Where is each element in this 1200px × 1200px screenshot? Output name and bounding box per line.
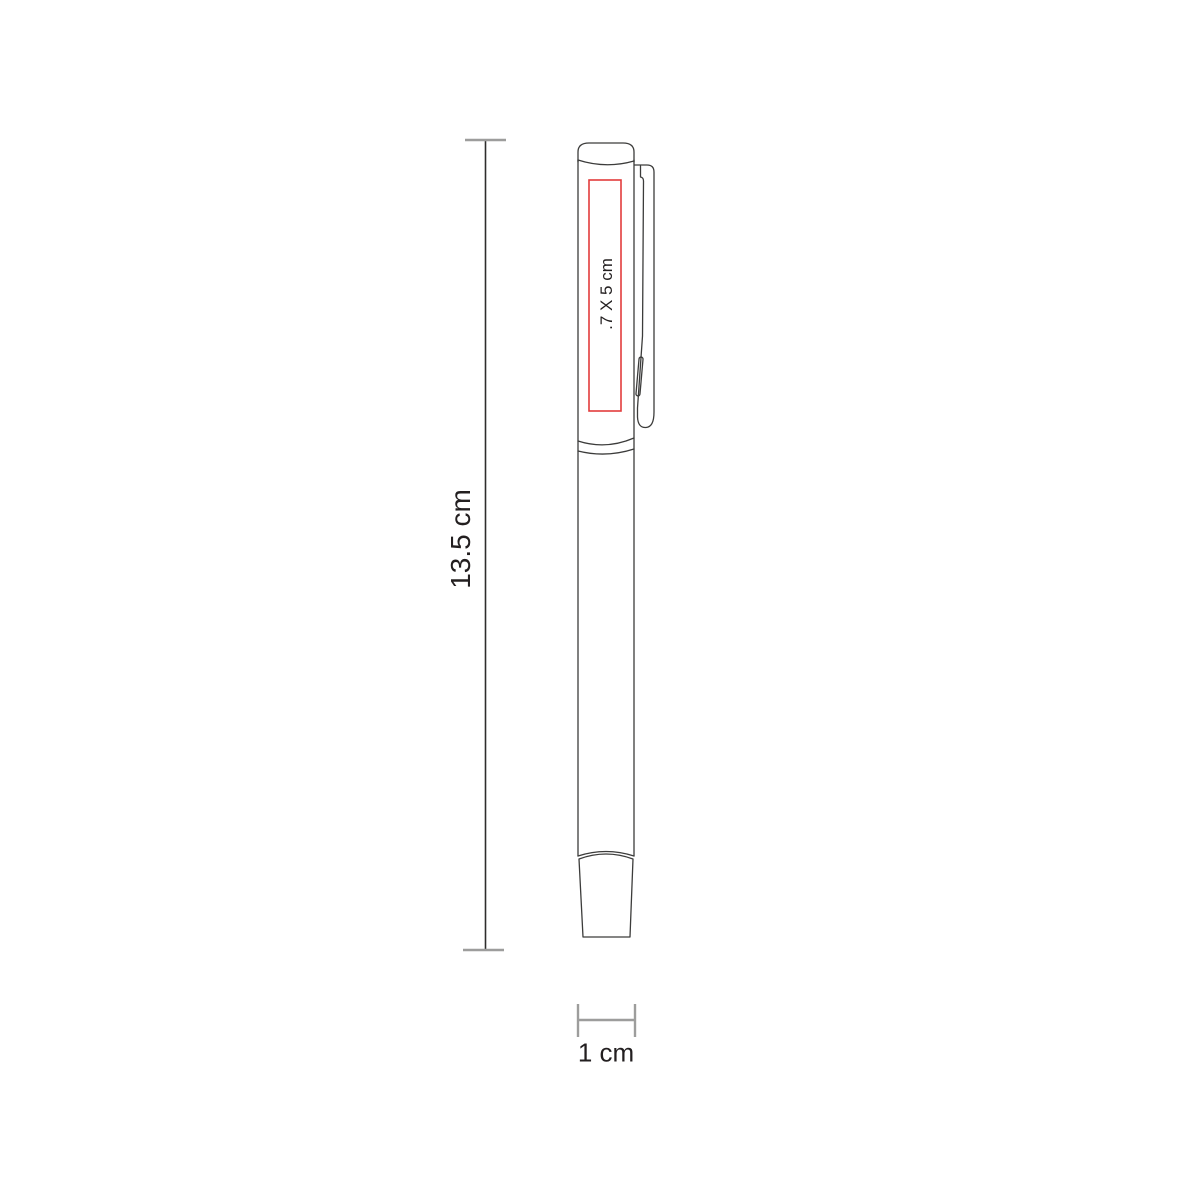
pen-tip bbox=[579, 854, 633, 937]
pen-line-art bbox=[0, 0, 1200, 1200]
pen-cap-dome bbox=[578, 143, 634, 162]
pen-cap-bottom-seam-lower bbox=[578, 449, 634, 454]
pen-cap-bottom-seam-upper bbox=[578, 438, 634, 445]
height-dimension-label: 13.5 cm bbox=[445, 489, 477, 589]
pen-clip bbox=[635, 165, 655, 428]
width-dimension-label: 1 cm bbox=[578, 1038, 634, 1069]
print-area-label: .7 X 5 cm bbox=[597, 258, 617, 330]
product-dimension-diagram: 13.5 cm .7 X 5 cm 1 cm bbox=[0, 0, 1200, 1200]
width-dimension-line bbox=[578, 1004, 635, 1037]
pen-cap-lip-seam bbox=[578, 160, 634, 165]
